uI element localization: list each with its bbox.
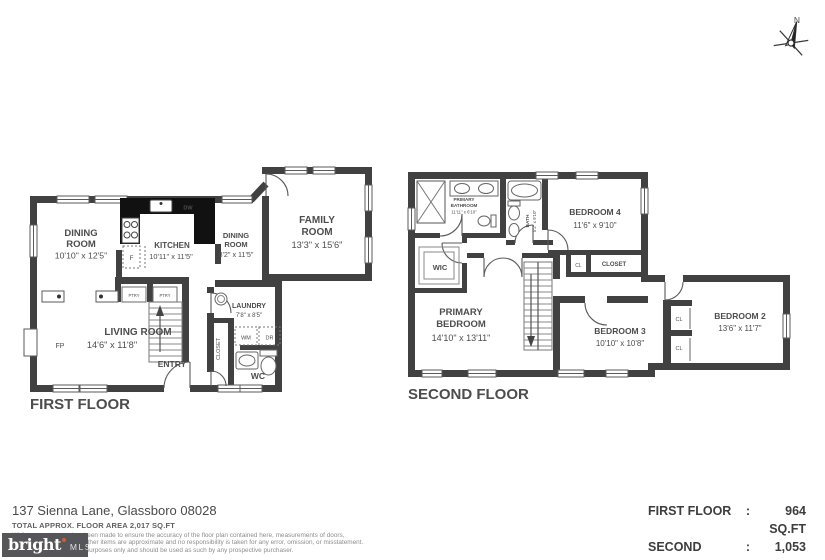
area-row-label: FIRST FLOOR	[648, 502, 742, 538]
floor-plan-drawing: N	[0, 0, 825, 560]
dining-room-2-label: DINING	[223, 231, 249, 240]
area-row-colon: :	[742, 538, 754, 560]
living-room-dims: 14'6" x 11'8"	[87, 340, 137, 350]
bedroom-2-label: BEDROOM 2	[714, 311, 766, 321]
property-address: 137 Sienna Lane, Glassboro 08028	[12, 503, 412, 518]
area-summary-table: FIRST FLOOR : 964 SQ.FT SECOND FLOOR : 1…	[648, 502, 806, 560]
shower	[417, 181, 445, 223]
washer-label: WM	[241, 336, 251, 342]
cl-top-label: CL	[675, 317, 682, 323]
bath-sink	[509, 224, 519, 237]
primary-bathroom-dims: 11'11" x 6'10"	[451, 210, 477, 215]
bedroom-2-dims: 13'6" x 11'7"	[718, 324, 761, 333]
family-room-dims: 13'3" x 15'6"	[292, 240, 343, 250]
bath-dims: 5'2" x 9'10"	[532, 210, 537, 233]
bedroom-3-label: BEDROOM 3	[594, 326, 646, 336]
fireplace	[24, 329, 37, 356]
cl-bottom-label: CL	[675, 346, 682, 352]
primary-bedroom-dims: 14'10" x 13'11"	[432, 333, 491, 343]
first-floor-title: FIRST FLOOR	[30, 396, 130, 413]
family-room-label: ROOM	[301, 227, 332, 238]
table-row: FIRST FLOOR : 964 SQ.FT	[648, 502, 806, 538]
closet-label: CLOSET	[216, 337, 222, 360]
primary-bedroom-label: PRIMARY	[439, 307, 483, 318]
logo-suffix-text: MLS	[70, 542, 92, 552]
dining-room-1-label: DINING	[64, 228, 97, 239]
stove-icon	[122, 218, 139, 243]
wic-label: WIC	[433, 263, 448, 272]
dining-room-1-label: ROOM	[66, 239, 96, 250]
dining-room-2-dims: 8'2" x 11'5"	[219, 250, 254, 259]
compass-rose: N	[773, 15, 812, 56]
first-floor-plan: DW PTRY	[24, 167, 372, 413]
dining-room-1-dims: 10'10" x 12'5"	[55, 251, 107, 261]
area-row-value: 1,053 SQ.FT	[754, 538, 806, 560]
wc-sink	[236, 352, 258, 369]
kitchen-dims: 10'11" x 11'5"	[149, 252, 193, 261]
bath-toilet	[508, 201, 520, 220]
closet-bed4-label: CLOSET	[602, 262, 627, 268]
double-vanity	[450, 181, 498, 196]
logo-dot-icon	[62, 538, 66, 542]
fireplace-label: FP	[56, 343, 65, 350]
kitchen-sink	[150, 200, 172, 212]
laundry-dims: 7'8" x 8'5"	[236, 313, 262, 319]
support-posts	[42, 291, 118, 302]
table-row: SECOND FLOOR : 1,053 SQ.FT	[648, 538, 806, 560]
family-room-label: FAMILY	[299, 215, 335, 226]
compass-north-label: N	[794, 15, 800, 25]
pantry-label: PTRY	[159, 293, 170, 298]
dishwasher-label: DW	[183, 206, 193, 212]
dryer-label: DR	[266, 336, 274, 342]
living-room-label: LIVING ROOM	[104, 327, 171, 338]
fridge-label: F	[130, 255, 134, 262]
primary-bathroom-label: BATHROOM	[451, 203, 478, 208]
bathtub	[508, 181, 541, 200]
primary-toilet	[478, 215, 496, 227]
bedroom-4-dims: 11'6" x 9'10"	[573, 221, 616, 230]
kitchen-label: KITCHEN	[154, 241, 190, 250]
total-area-note: TOTAL APPROX. FLOOR AREA 2,017 SQ.FT	[12, 521, 412, 530]
dining-room-2-label: ROOM	[224, 240, 247, 249]
primary-bedroom-label: BEDROOM	[436, 319, 486, 330]
floor-plan-page: N	[0, 0, 825, 560]
wc-label: WC	[251, 371, 265, 381]
bedroom-3-dims: 10'10" x 10'8"	[596, 339, 644, 348]
second-floor-stairs	[524, 262, 552, 350]
area-row-colon: :	[742, 502, 754, 538]
logo-brand-text: bright	[8, 537, 61, 553]
pantry-label: PTRY	[128, 293, 139, 298]
cl-bed4-label: CL	[575, 263, 582, 269]
bedroom-4-label: BEDROOM 4	[569, 207, 621, 217]
area-row-label: SECOND FLOOR	[648, 538, 742, 560]
bright-mls-logo: bright MLS	[2, 533, 88, 557]
entry-label: ENTRY	[158, 359, 187, 369]
primary-bathroom-label: PRIMARY	[453, 197, 474, 202]
second-floor-plan: PRIMARY BATHROOM 11'11" x 6'10" BATH 5'2…	[408, 172, 790, 403]
area-row-value: 964 SQ.FT	[754, 502, 806, 538]
bath-label: BATH	[525, 214, 531, 228]
laundry-label: LAUNDRY	[232, 303, 266, 310]
second-floor-title: SECOND FLOOR	[408, 386, 529, 403]
